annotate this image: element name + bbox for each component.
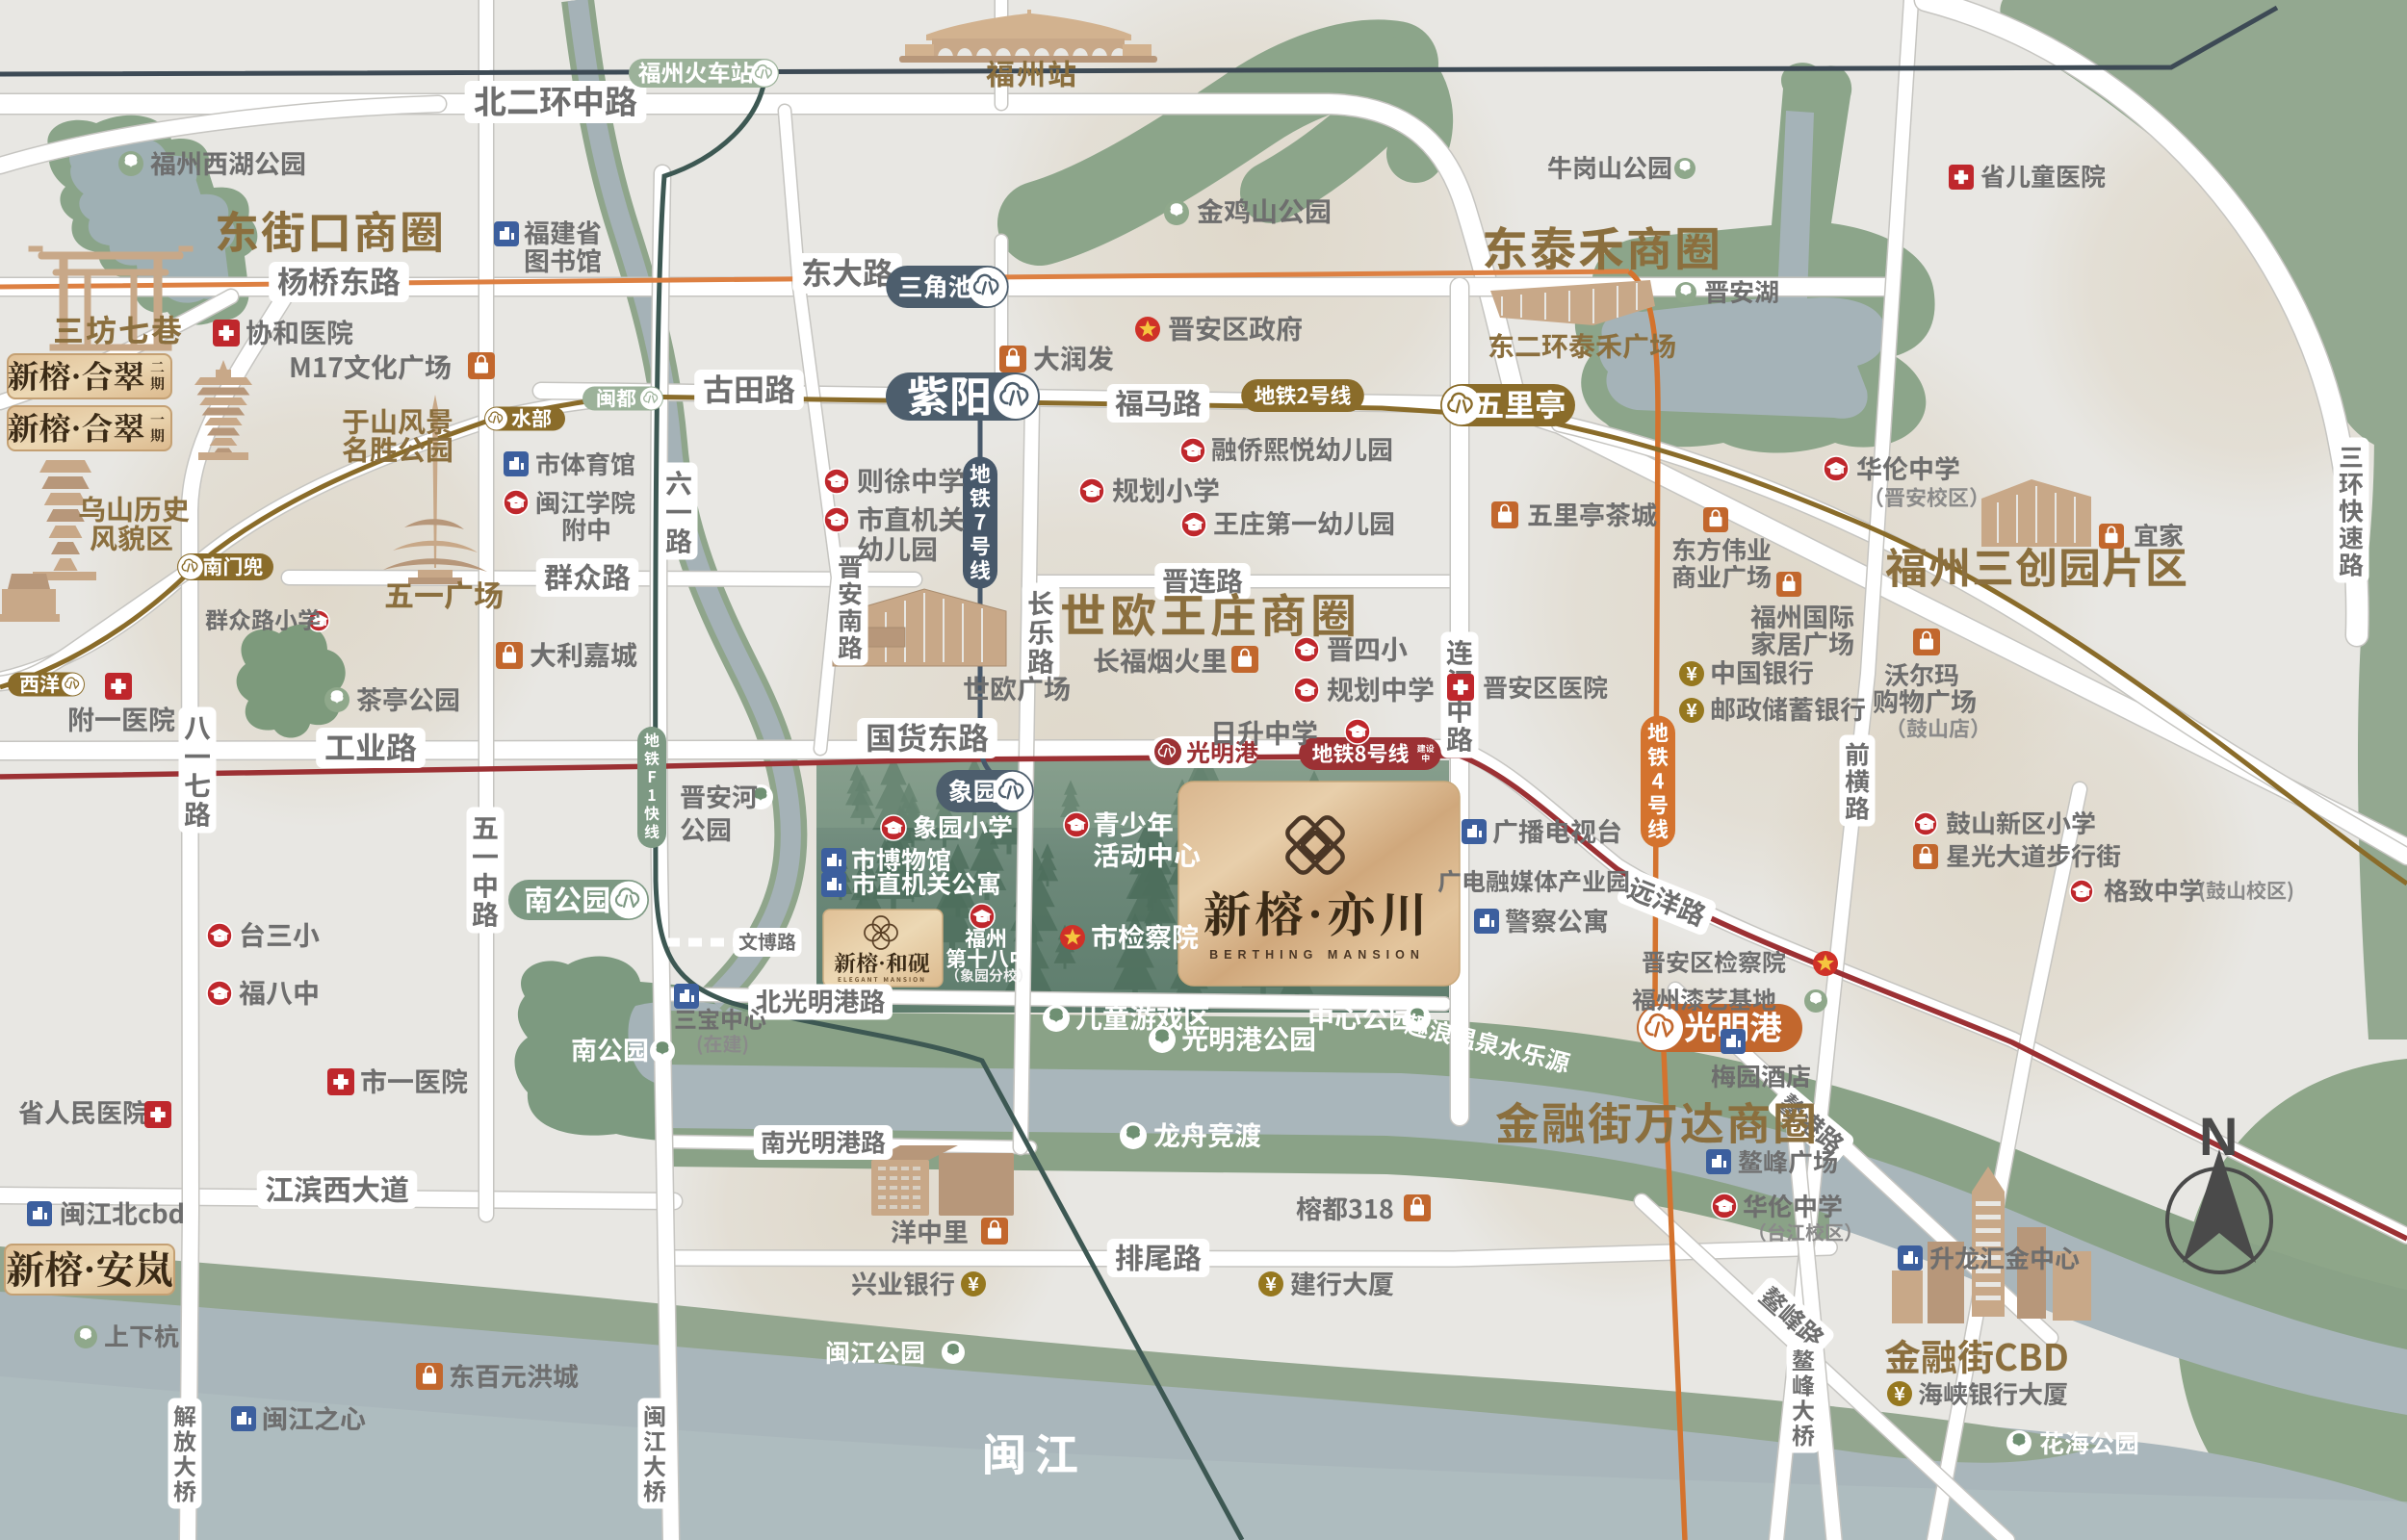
svg-text:五里亭茶城: 五里亭茶城 — [1527, 495, 1657, 532]
svg-text:南公园: 南公园 — [524, 877, 610, 919]
svg-text:协和医院: 协和医院 — [246, 313, 353, 351]
svg-text:（象园分校）: （象园分校） — [945, 965, 1032, 986]
svg-text:线: 线 — [644, 819, 660, 842]
svg-text:图书馆: 图书馆 — [524, 241, 602, 278]
svg-text:闽江北cbd: 闽江北cbd — [60, 1193, 185, 1231]
svg-text:路: 路 — [1845, 790, 1870, 826]
svg-text:紫阳: 紫阳 — [907, 363, 992, 424]
svg-text:福州站: 福州站 — [986, 51, 1078, 93]
svg-text:幼儿园: 幼儿园 — [857, 529, 938, 568]
svg-text:中国银行: 中国银行 — [1710, 653, 1814, 690]
svg-text:东街口商圈: 东街口商圈 — [215, 198, 446, 262]
svg-text:南光明港路: 南光明港路 — [761, 1123, 886, 1159]
svg-text:建行大厦: 建行大厦 — [1290, 1264, 1394, 1301]
svg-text:晋安湖: 晋安湖 — [1704, 273, 1779, 309]
svg-text:路: 路 — [838, 629, 863, 665]
svg-text:洋中里: 洋中里 — [891, 1212, 969, 1249]
svg-text:杨桥东路: 杨桥东路 — [277, 259, 401, 303]
svg-text:长福烟火里: 长福烟火里 — [1093, 641, 1228, 680]
svg-text:则徐中学: 则徐中学 — [857, 461, 965, 500]
svg-text:世欧王庄商圈: 世欧王庄商圈 — [1060, 578, 1360, 646]
svg-text:三角池: 三角池 — [898, 268, 973, 303]
svg-text:省儿童医院: 省儿童医院 — [1980, 158, 2106, 193]
svg-text:闽都: 闽都 — [596, 384, 636, 413]
svg-text:东大路: 东大路 — [801, 250, 893, 295]
svg-text:附一医院: 附一医院 — [67, 700, 175, 738]
svg-text:广电融媒体产业园: 广电融媒体产业园 — [1437, 863, 1630, 898]
svg-text:省人民医院: 省人民医院 — [18, 1092, 148, 1130]
svg-text:桥: 桥 — [643, 1474, 666, 1507]
svg-text:东二环泰禾广场: 东二环泰禾广场 — [1488, 326, 1676, 365]
svg-text:江滨西大道: 江滨西大道 — [265, 1167, 409, 1209]
svg-text:路: 路 — [2339, 547, 2364, 582]
svg-text:金融街CBD: 金融街CBD — [1884, 1328, 2069, 1381]
svg-text:晋四小: 晋四小 — [1327, 629, 1408, 668]
svg-text:规划中学: 规划中学 — [1327, 670, 1435, 708]
svg-text:西洋: 西洋 — [19, 670, 60, 699]
svg-text:上下杭: 上下杭 — [104, 1318, 179, 1353]
svg-text:南公园: 南公园 — [571, 1030, 649, 1067]
svg-text:线: 线 — [970, 554, 991, 585]
svg-text:台三小: 台三小 — [239, 915, 320, 954]
svg-text:升龙汇金中心: 升龙汇金中心 — [1929, 1240, 2080, 1275]
svg-text:市体育馆: 市体育馆 — [535, 446, 635, 481]
svg-text:中心公园: 中心公园 — [1307, 998, 1415, 1037]
svg-text:新榕·合翠: 新榕·合翠 — [7, 404, 144, 449]
svg-text:五一广场: 五一广场 — [384, 572, 504, 615]
svg-text:（晋安校区）: （晋安校区） — [1863, 481, 1990, 512]
svg-text:路: 路 — [184, 795, 211, 834]
svg-text:鳌峰广场: 鳌峰广场 — [1738, 1143, 1838, 1179]
svg-text:文博路: 文博路 — [738, 927, 796, 955]
svg-text:新榕·合翠: 新榕·合翠 — [7, 352, 144, 398]
svg-text:福州火车站: 福州火车站 — [638, 55, 754, 89]
svg-text:(在建): (在建) — [696, 1029, 749, 1057]
svg-text:期: 期 — [150, 425, 165, 446]
svg-text:闽江公园: 闽江公园 — [825, 1334, 925, 1370]
svg-text:星光大道步行街: 星光大道步行街 — [1946, 837, 2121, 873]
svg-text:东泰禾商圈: 东泰禾商圈 — [1482, 212, 1722, 279]
svg-text:市直机关公寓: 市直机关公寓 — [851, 865, 1001, 901]
svg-text:商业广场: 商业广场 — [1671, 558, 1772, 594]
svg-text:（台江校区）: （台江校区） — [1747, 1218, 1863, 1245]
svg-text:线: 线 — [1647, 813, 1669, 844]
svg-text:中: 中 — [1421, 752, 1430, 764]
svg-text:¥: ¥ — [968, 1269, 979, 1296]
svg-text:广播电视台: 广播电视台 — [1492, 811, 1622, 849]
svg-text:龙舟竞渡: 龙舟竞渡 — [1153, 1116, 1261, 1154]
svg-text:群众路: 群众路 — [544, 554, 631, 597]
svg-text:排尾路: 排尾路 — [1115, 1235, 1202, 1277]
svg-text:三坊七巷: 三坊七巷 — [53, 307, 184, 351]
svg-text:风貌区: 风貌区 — [90, 517, 173, 557]
svg-text:花海公园: 花海公园 — [2039, 1424, 2139, 1460]
svg-text:晋安区政府: 晋安区政府 — [1168, 309, 1303, 347]
svg-text:世欧广场: 世欧广场 — [963, 669, 1071, 707]
svg-text:梅园酒店: 梅园酒店 — [1711, 1058, 1811, 1093]
svg-text:公园: 公园 — [680, 809, 732, 847]
svg-text:榕都318: 榕都318 — [1296, 1189, 1394, 1226]
svg-text:新榕·亦川: 新榕·亦川 — [1203, 877, 1432, 946]
svg-text:日升中学: 日升中学 — [1210, 713, 1318, 752]
svg-text:工业路: 工业路 — [324, 725, 417, 769]
svg-text:北二环中路: 北二环中路 — [474, 76, 637, 123]
svg-text:警察公寓: 警察公寓 — [1505, 901, 1609, 938]
svg-text:(鼓山校区): (鼓山校区) — [2198, 876, 2294, 905]
svg-text:地铁2号线: 地铁2号线 — [1255, 379, 1352, 410]
svg-text:（鼓山店）: （鼓山店） — [1885, 712, 1991, 743]
svg-text:路: 路 — [1446, 720, 1473, 758]
svg-text:格致中学: 格致中学 — [2104, 872, 2204, 908]
svg-text:¥: ¥ — [1686, 695, 1697, 723]
svg-text:¥: ¥ — [1686, 658, 1697, 686]
svg-text:群众路小学: 群众路小学 — [205, 602, 321, 635]
svg-text:M17文化广场: M17文化广场 — [289, 347, 452, 386]
svg-text:附中: 附中 — [561, 511, 611, 547]
svg-text:路: 路 — [472, 895, 499, 934]
svg-text:福州漆艺基地: 福州漆艺基地 — [1632, 982, 1776, 1016]
svg-text:光明港公园: 光明港公园 — [1181, 1019, 1316, 1058]
svg-text:活动中心: 活动中心 — [1093, 835, 1201, 874]
svg-text:福八中: 福八中 — [239, 973, 320, 1012]
svg-text:路: 路 — [665, 522, 692, 560]
svg-text:王庄第一幼儿园: 王庄第一幼儿园 — [1213, 503, 1395, 541]
svg-text:期: 期 — [150, 373, 165, 394]
svg-text:市检察院: 市检察院 — [1091, 917, 1199, 956]
svg-text:N: N — [2199, 1106, 2238, 1167]
svg-text:茶亭公园: 茶亭公园 — [356, 680, 460, 717]
svg-text:北光明港路: 北光明港路 — [756, 982, 886, 1019]
svg-text:海峡银行大厦: 海峡银行大厦 — [1918, 1375, 2068, 1411]
svg-text:闽江: 闽江 — [982, 1421, 1086, 1484]
svg-text:¥: ¥ — [1894, 1378, 1905, 1406]
svg-text:兴业银行: 兴业银行 — [851, 1264, 955, 1301]
svg-text:象园小学: 象园小学 — [913, 808, 1013, 844]
svg-text:新榕·安岚: 新榕·安岚 — [6, 1240, 172, 1295]
svg-text:五里亭: 五里亭 — [1473, 382, 1566, 426]
svg-text:宜家: 宜家 — [2134, 517, 2184, 552]
svg-text:BERTHING MANSION: BERTHING MANSION — [1209, 948, 1425, 962]
svg-text:鼓山新区小学: 鼓山新区小学 — [1946, 805, 2096, 840]
svg-text:邮政储蓄银行: 邮政储蓄银行 — [1710, 689, 1866, 727]
svg-text:国货东路: 国货东路 — [866, 715, 989, 759]
svg-text:水部: 水部 — [511, 404, 552, 433]
svg-text:福州西湖公园: 福州西湖公园 — [150, 143, 306, 181]
svg-text:象园: 象园 — [948, 772, 998, 808]
svg-text:桥: 桥 — [1792, 1418, 1815, 1451]
svg-text:大润发: 大润发 — [1033, 339, 1114, 377]
svg-text:桥: 桥 — [173, 1474, 196, 1507]
svg-text:名胜公园: 名胜公园 — [342, 428, 453, 469]
svg-text:大利嘉城: 大利嘉城 — [530, 635, 637, 674]
svg-text:南门兜: 南门兜 — [202, 552, 263, 581]
svg-text:闽江之心: 闽江之心 — [262, 1399, 366, 1436]
svg-text:牛岗山公园: 牛岗山公园 — [1547, 149, 1672, 185]
svg-text:古田路: 古田路 — [703, 367, 795, 411]
svg-text:市一医院: 市一医院 — [360, 1062, 468, 1100]
svg-text:东百元洪城: 东百元洪城 — [449, 1356, 579, 1394]
svg-text:¥: ¥ — [1265, 1269, 1277, 1296]
svg-text:规划小学: 规划小学 — [1112, 471, 1220, 509]
svg-text:晋安区检察院: 晋安区检察院 — [1642, 944, 1786, 979]
svg-text:金鸡山公园: 金鸡山公园 — [1197, 192, 1332, 230]
svg-text:福马路: 福马路 — [1115, 380, 1202, 423]
svg-text:晋安区医院: 晋安区医院 — [1483, 669, 1608, 705]
svg-text:融侨熙悦幼儿园: 融侨熙悦幼儿园 — [1211, 429, 1393, 467]
